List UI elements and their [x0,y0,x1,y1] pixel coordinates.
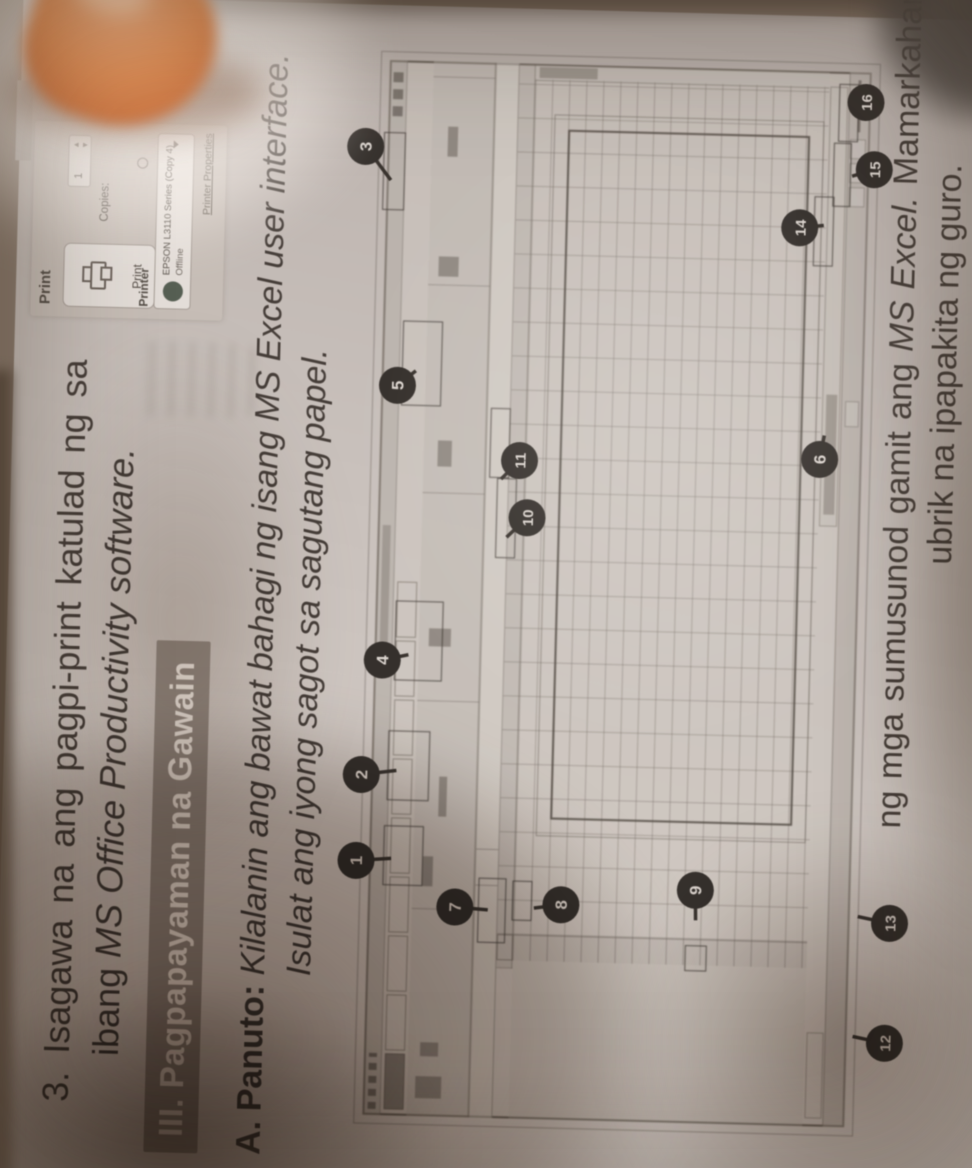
vignette [0,0,972,1168]
worksheet-photo: 3.Isagawa na ang pagpi-print katulad ng … [0,0,972,1168]
